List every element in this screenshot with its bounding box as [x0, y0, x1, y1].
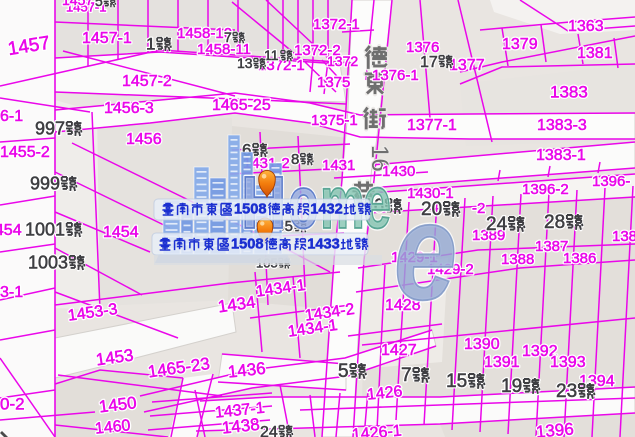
svg-text:1375-1: 1375-1: [311, 112, 358, 129]
svg-text:1396-: 1396-: [592, 173, 630, 190]
svg-text:1396-2: 1396-2: [522, 181, 569, 198]
svg-text:1375: 1375: [317, 74, 350, 91]
svg-text:1363: 1363: [568, 18, 604, 35]
svg-text:19: 19: [501, 376, 522, 397]
svg-text:1390: 1390: [464, 336, 500, 353]
svg-text:1381: 1381: [577, 45, 613, 62]
svg-text:1436: 1436: [227, 359, 267, 382]
svg-text:15: 15: [446, 371, 467, 392]
svg-text:1393: 1393: [550, 354, 586, 371]
svg-text:1376-1: 1376-1: [372, 67, 419, 84]
svg-text:1372: 1372: [327, 53, 358, 69]
svg-text:1386: 1386: [563, 250, 596, 267]
svg-text:7: 7: [224, 29, 232, 45]
svg-text:1377: 1377: [449, 57, 485, 74]
svg-text:17: 17: [420, 54, 438, 71]
svg-text:6-1: 6-1: [0, 108, 23, 125]
svg-text:1396: 1396: [535, 419, 574, 437]
svg-text:1456: 1456: [126, 131, 162, 148]
svg-text:1508: 1508: [231, 237, 263, 253]
svg-text:1457: 1457: [62, 0, 93, 8]
svg-text:28: 28: [544, 212, 565, 233]
svg-text:997: 997: [35, 118, 65, 138]
svg-text:7: 7: [401, 365, 412, 386]
svg-text:0-2: 0-2: [0, 395, 25, 414]
svg-text:1432: 1432: [310, 202, 342, 218]
svg-text:1465-25: 1465-25: [212, 97, 271, 114]
svg-text:5: 5: [95, 0, 103, 9]
svg-text:1383: 1383: [550, 83, 588, 102]
svg-text:1454: 1454: [103, 224, 139, 241]
svg-text:1508: 1508: [234, 202, 266, 218]
svg-text:1383-3: 1383-3: [537, 117, 587, 134]
svg-text:e: e: [394, 174, 457, 328]
svg-text:23: 23: [556, 381, 577, 402]
svg-text:3-1: 3-1: [0, 284, 23, 301]
svg-text:1460: 1460: [94, 417, 131, 437]
svg-text:1001: 1001: [25, 219, 65, 239]
svg-text:1383: 1383: [612, 228, 635, 245]
svg-text:1372-1: 1372-1: [313, 16, 360, 33]
svg-text:1388: 1388: [501, 251, 534, 268]
svg-text:5: 5: [338, 361, 349, 382]
svg-text:1457-2: 1457-2: [122, 73, 172, 90]
svg-text:1383-1: 1383-1: [536, 147, 586, 164]
svg-text:1457-1: 1457-1: [82, 30, 132, 47]
svg-text:11: 11: [264, 47, 279, 63]
svg-text:1: 1: [146, 35, 155, 54]
svg-text:1377-1: 1377-1: [407, 117, 457, 134]
svg-text:1427: 1427: [381, 342, 417, 359]
svg-text:13: 13: [237, 55, 253, 71]
svg-text:24: 24: [486, 214, 508, 235]
svg-text:-2: -2: [472, 200, 485, 217]
svg-text:1456-3: 1456-3: [104, 100, 154, 117]
svg-text:1433: 1433: [307, 237, 339, 253]
svg-text:1454: 1454: [0, 222, 22, 239]
svg-text:1438: 1438: [221, 415, 261, 437]
svg-text:1003: 1003: [28, 252, 68, 272]
svg-text:999: 999: [30, 173, 60, 193]
svg-text:1455-2: 1455-2: [0, 144, 50, 161]
svg-text:1379: 1379: [502, 36, 538, 53]
svg-text:1391: 1391: [484, 354, 520, 371]
svg-text:24: 24: [260, 424, 278, 437]
